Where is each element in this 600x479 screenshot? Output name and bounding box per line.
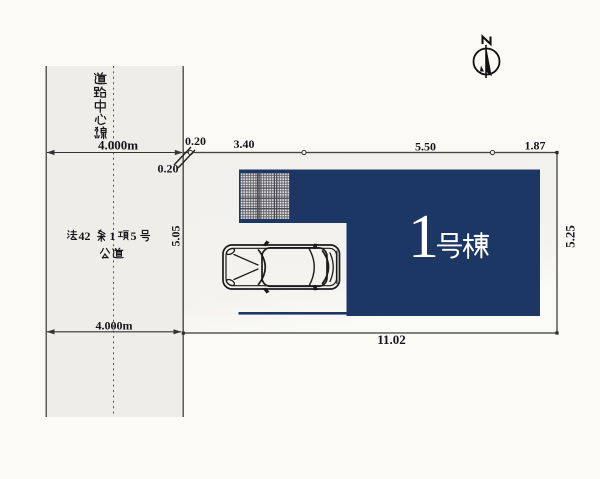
svg-text:0.20: 0.20 (158, 162, 179, 176)
svg-text:1: 1 (110, 229, 116, 243)
svg-text:42: 42 (79, 229, 91, 243)
svg-text:1: 1 (408, 203, 439, 271)
svg-text:11.02: 11.02 (377, 332, 406, 347)
svg-text:5.50: 5.50 (415, 140, 436, 154)
svg-text:5.05: 5.05 (169, 226, 183, 247)
svg-text:4.000m: 4.000m (96, 319, 133, 333)
svg-text:0.20: 0.20 (185, 134, 206, 148)
svg-text:3.40: 3.40 (234, 137, 255, 151)
svg-text:1.87: 1.87 (525, 139, 546, 153)
svg-text:5.25: 5.25 (563, 225, 578, 248)
svg-text:5: 5 (131, 229, 137, 243)
svg-text:4.000m: 4.000m (98, 138, 138, 153)
